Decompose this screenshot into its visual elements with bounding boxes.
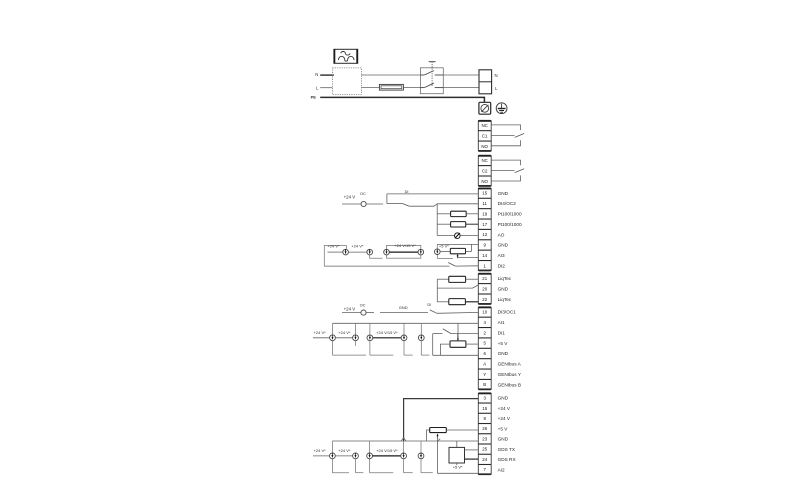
svg-text:GENIbus Y: GENIbus Y — [498, 372, 522, 377]
svg-text:+24 V: +24 V — [498, 406, 511, 411]
svg-text:+24 V: +24 V — [344, 194, 356, 199]
svg-text:Pt100/1000: Pt100/1000 — [498, 222, 522, 227]
svg-text:B: B — [483, 382, 486, 387]
svg-text:26: 26 — [482, 426, 487, 431]
svg-text:NC: NC — [482, 123, 488, 128]
svg-text:NC: NC — [482, 158, 488, 163]
svg-text:+5 V: +5 V — [498, 426, 509, 431]
svg-text:25: 25 — [482, 447, 487, 452]
svg-text:Y: Y — [483, 372, 486, 377]
svg-text:AI3: AI3 — [498, 253, 505, 258]
svg-text:DI: DI — [405, 189, 409, 194]
svg-text:20: 20 — [482, 286, 487, 291]
svg-text:DI1: DI1 — [498, 330, 506, 335]
svg-text:NO: NO — [481, 179, 488, 184]
svg-text:DI2: DI2 — [498, 263, 506, 268]
svg-text:A: A — [483, 361, 486, 366]
svg-text:+24 V: +24 V — [344, 306, 356, 311]
svg-text:15: 15 — [482, 191, 487, 196]
svg-text:GND: GND — [498, 396, 509, 401]
svg-text:DI3/OC1: DI3/OC1 — [498, 310, 517, 315]
svg-text:+24 V/15 V*: +24 V/15 V* — [376, 448, 398, 453]
svg-text:GND: GND — [498, 191, 509, 196]
svg-text:+24 V*: +24 V* — [327, 243, 340, 248]
svg-text:24: 24 — [482, 457, 487, 462]
svg-text:+24 V*: +24 V* — [314, 330, 327, 335]
svg-text:Pt100/1000: Pt100/1000 — [498, 212, 522, 217]
svg-text:AO: AO — [498, 232, 505, 237]
svg-text:+24 V/15 V*: +24 V/15 V* — [376, 330, 398, 335]
svg-text:+5 V*: +5 V* — [453, 464, 463, 469]
svg-text:10: 10 — [482, 310, 487, 315]
svg-text:+24 V*: +24 V* — [338, 330, 351, 335]
svg-text:19: 19 — [482, 211, 487, 216]
svg-text:N: N — [495, 73, 498, 78]
svg-text:GND: GND — [399, 305, 408, 310]
svg-text:NO: NO — [481, 144, 488, 149]
svg-text:12: 12 — [482, 232, 487, 237]
svg-text:17: 17 — [482, 222, 487, 227]
svg-text:OC: OC — [360, 192, 366, 196]
svg-text:PE: PE — [311, 95, 317, 100]
svg-text:GND: GND — [498, 351, 509, 356]
svg-text:LiqTec: LiqTec — [498, 297, 512, 302]
svg-text:+24 V*: +24 V* — [351, 243, 364, 248]
svg-text:AI1: AI1 — [498, 320, 505, 325]
svg-text:AI2: AI2 — [498, 467, 505, 472]
svg-text:GDS TX: GDS TX — [498, 447, 516, 452]
svg-text:+24 V*: +24 V* — [314, 448, 327, 453]
svg-text:C1: C1 — [482, 133, 488, 138]
svg-text:GND: GND — [498, 287, 509, 292]
svg-text:GND: GND — [498, 243, 509, 248]
svg-text:+5 V: +5 V — [498, 341, 509, 346]
svg-text:GENIbus B: GENIbus B — [498, 382, 521, 387]
svg-text:15: 15 — [482, 406, 487, 411]
svg-text:14: 14 — [482, 253, 487, 258]
svg-text:+24 V/15 V*: +24 V/15 V* — [394, 243, 416, 248]
svg-text:21: 21 — [482, 276, 487, 281]
svg-text:23: 23 — [482, 436, 487, 441]
svg-text:GDS RX: GDS RX — [498, 457, 517, 462]
svg-text:GENIbus A: GENIbus A — [498, 362, 522, 367]
svg-text:+24 V*: +24 V* — [338, 448, 351, 453]
svg-text:11: 11 — [482, 201, 487, 206]
svg-text:22: 22 — [482, 297, 487, 302]
svg-text:+24 V: +24 V — [498, 416, 511, 421]
svg-text:GND: GND — [498, 437, 509, 442]
svg-text:OC: OC — [360, 304, 366, 308]
svg-text:DI4/OC2: DI4/OC2 — [498, 201, 517, 206]
svg-text:C2: C2 — [482, 168, 488, 173]
svg-text:DI: DI — [427, 302, 431, 307]
svg-text:LiqTec: LiqTec — [498, 276, 512, 281]
svg-text:N: N — [315, 72, 318, 77]
